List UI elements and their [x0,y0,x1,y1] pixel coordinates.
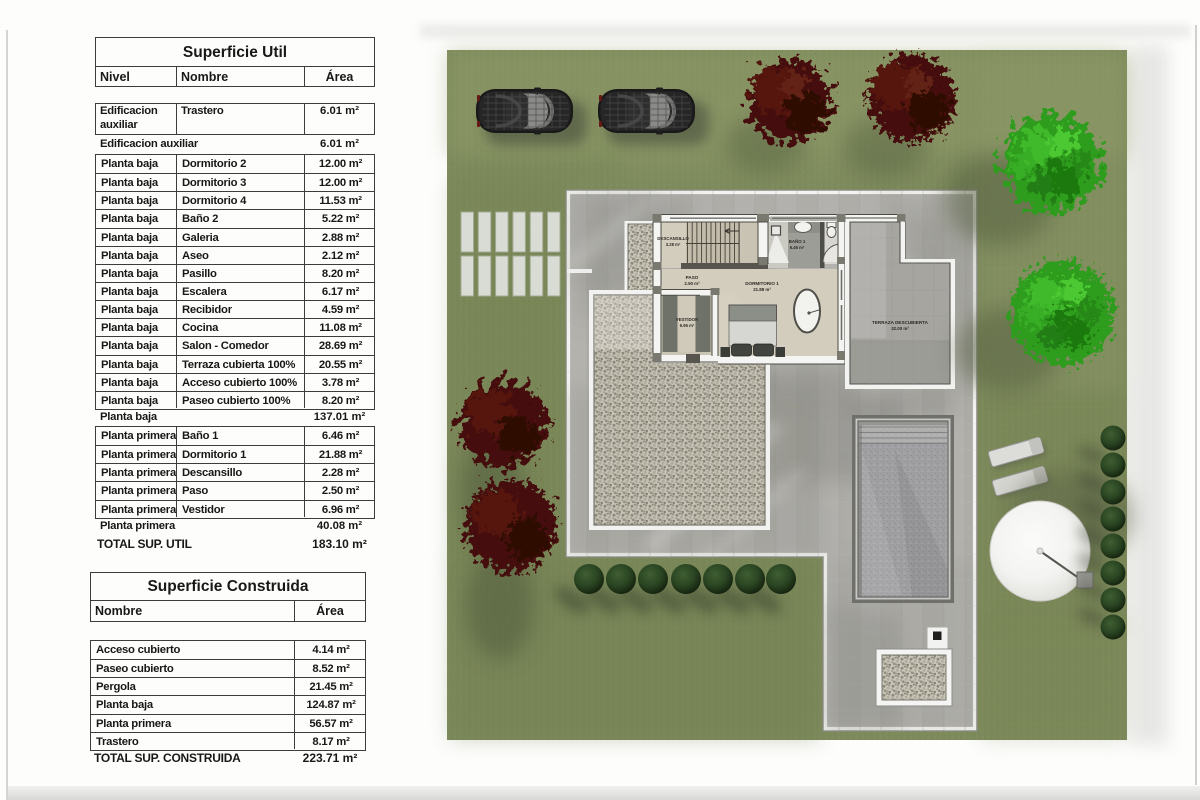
svg-text:DESCANSILLO: DESCANSILLO [657,236,689,241]
svg-text:32.00 m²: 32.00 m² [891,326,909,331]
svg-text:21.88 m²: 21.88 m² [753,287,771,292]
svg-text:TERRAZA DESCUBIERTA: TERRAZA DESCUBIERTA [872,320,929,325]
svg-text:DORMITORIO 1: DORMITORIO 1 [745,281,779,286]
svg-text:PASO: PASO [686,275,699,280]
svg-text:3.28 m²: 3.28 m² [666,242,681,247]
svg-text:6.46 m²: 6.46 m² [790,245,805,250]
svg-text:BAÑO 1: BAÑO 1 [789,239,806,244]
svg-text:VESTIDOR: VESTIDOR [676,317,699,322]
svg-text:6.96 m²: 6.96 m² [680,323,695,328]
svg-text:2.50 m²: 2.50 m² [684,281,700,286]
